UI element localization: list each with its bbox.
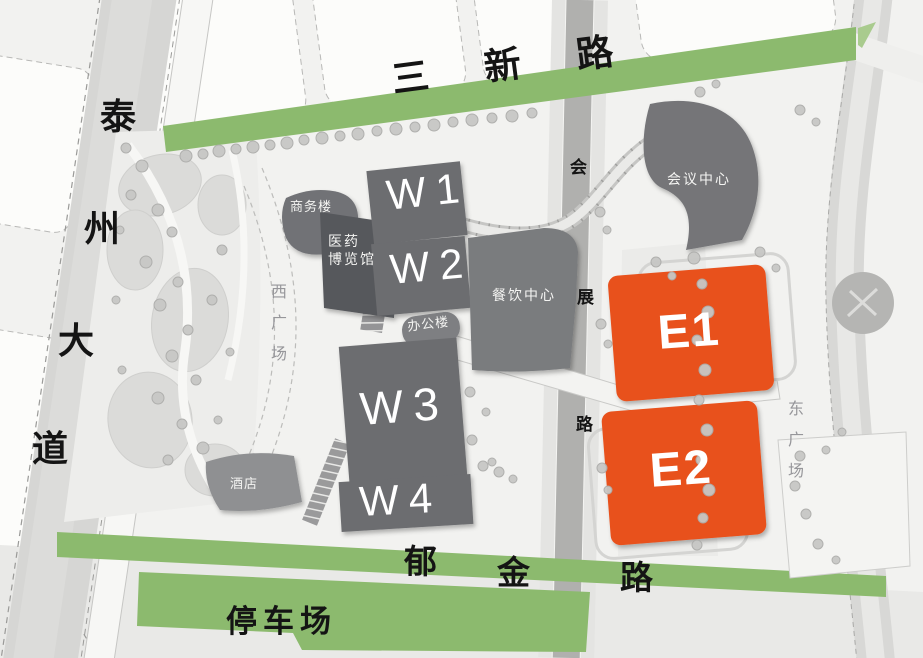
yujin-char-2: 金 <box>497 546 530 594</box>
pharma-expo-line1: 医药 <box>328 232 376 250</box>
business-building-label: 商务楼 <box>290 196 332 215</box>
taizhou-char-4: 道 <box>32 420 68 472</box>
site-plan-map: 三新路 泰 州 大 道 郁 金 路 会 展 路 停车场 W1 W2 W3 W4 … <box>0 0 923 658</box>
pharma-expo-label: 医药 博览馆 <box>328 232 376 268</box>
east-plaza-label: 东 广 场 <box>788 394 804 487</box>
yujin-char-1: 郁 <box>404 535 437 583</box>
conference-center-label: 会议中心 <box>667 169 731 189</box>
huizhan-char-2: 展 <box>577 283 594 308</box>
taizhou-char-2: 州 <box>84 200 120 252</box>
dining-center-label: 餐饮中心 <box>492 285 556 305</box>
taizhou-char-1: 泰 <box>100 88 136 140</box>
hall-e1-label: E1 <box>656 302 722 361</box>
huizhan-char-3: 路 <box>576 410 593 435</box>
huizhan-char-1: 会 <box>570 153 587 178</box>
taizhou-char-3: 大 <box>58 312 94 364</box>
map-canvas <box>0 0 923 658</box>
hall-w3-label: W3 <box>358 376 451 436</box>
west-plaza-label: 西 广 场 <box>271 277 287 370</box>
roundabout <box>832 272 894 334</box>
yujin-char-3: 路 <box>620 551 653 599</box>
hall-w1-label: W1 <box>384 163 472 219</box>
hall-e2-label: E2 <box>648 440 714 499</box>
hall-w4-label: W4 <box>358 474 443 526</box>
pharma-expo-line2: 博览馆 <box>328 250 376 268</box>
hotel-label: 酒店 <box>230 473 258 492</box>
parking-lot-label: 停车场 <box>226 596 337 641</box>
hall-w2-label: W2 <box>388 239 475 294</box>
